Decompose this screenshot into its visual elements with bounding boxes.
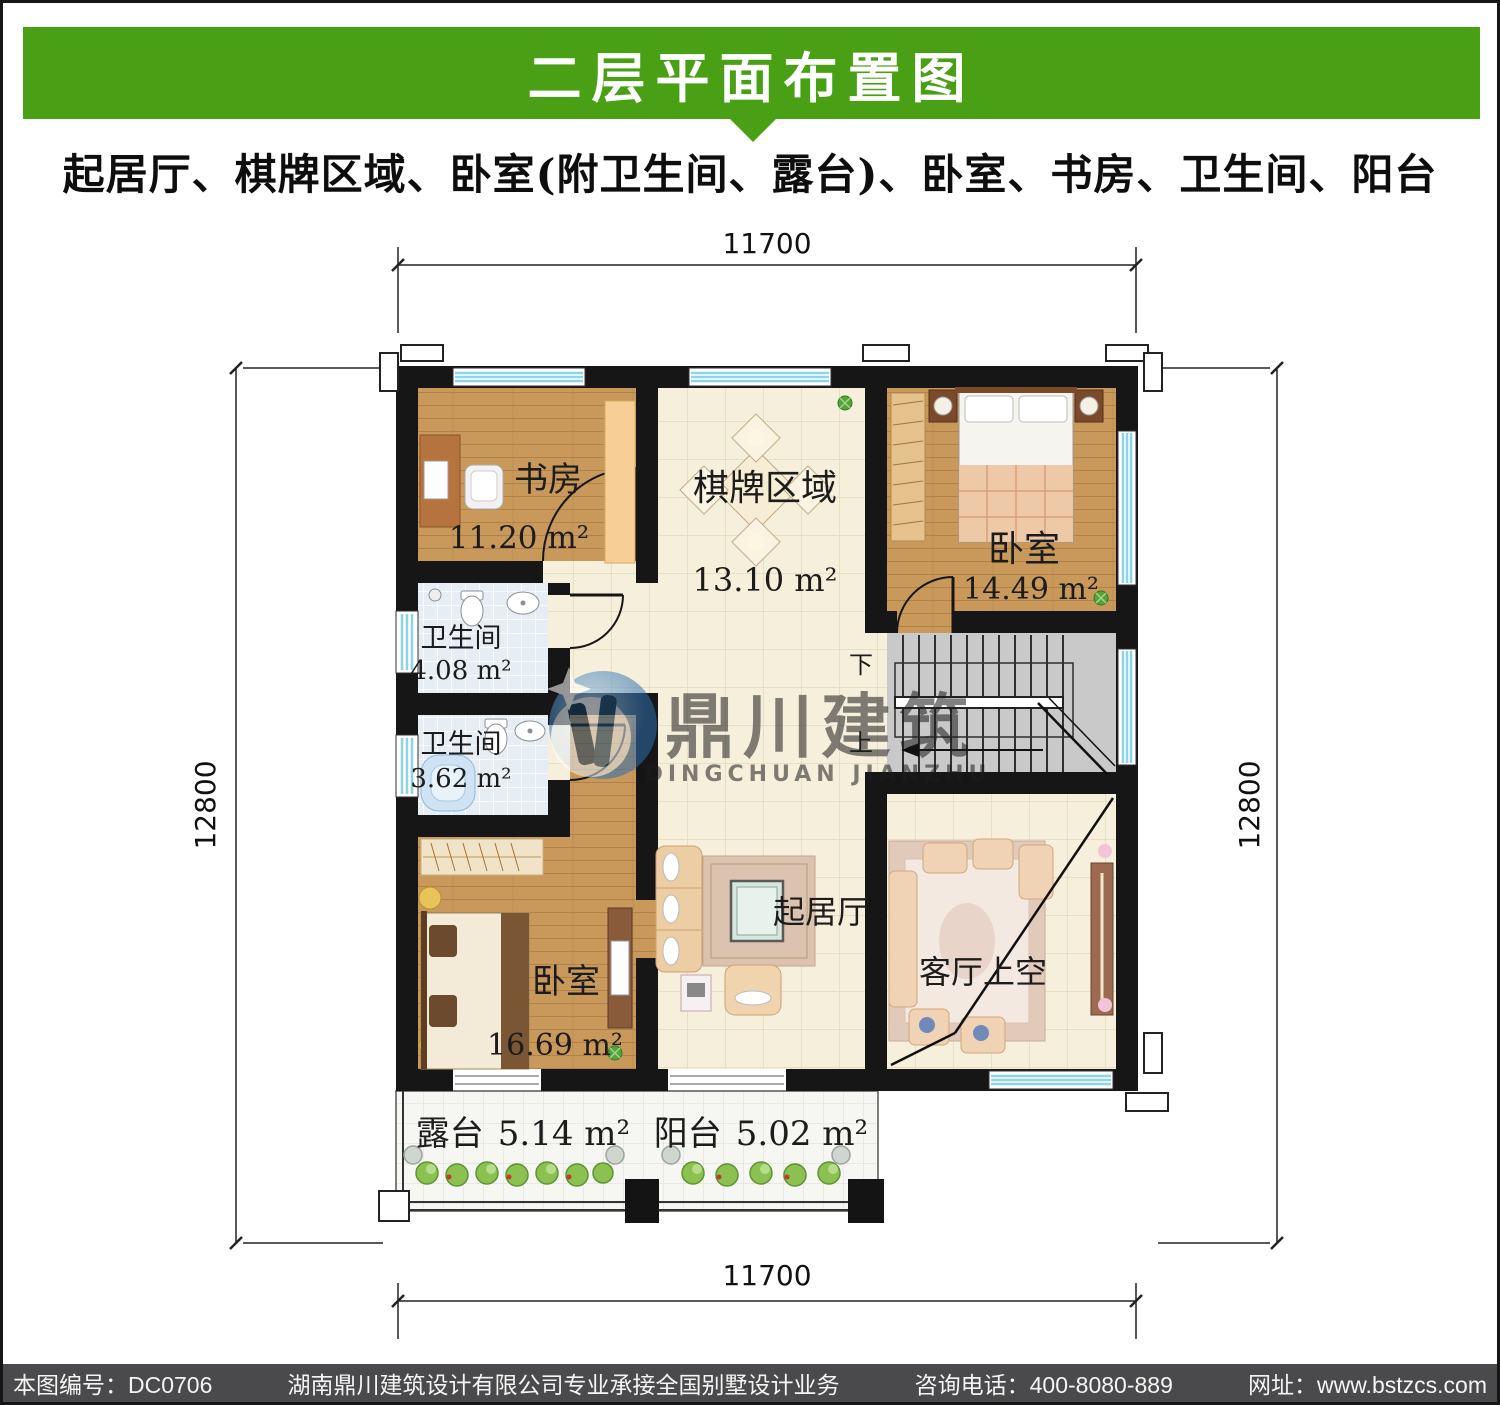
room-label-void: 客厅上空 — [919, 953, 1047, 991]
room-label-living: 起居厅 — [773, 893, 869, 931]
dimension-bottom: 11700 — [392, 1259, 1142, 1339]
armchair — [923, 843, 967, 873]
dimension-right: 12800 — [1158, 362, 1283, 1249]
window-icon — [989, 1071, 1113, 1089]
watermark-en: DINGCHUAN JIANZHU — [645, 762, 992, 787]
window-icon — [1118, 431, 1136, 585]
flower — [1098, 844, 1112, 858]
bedroom-ne-furniture — [891, 387, 1103, 542]
wardrobe — [891, 393, 925, 541]
footer-bar: 本图编号：DC0706 湖南鼎川建筑设计有限公司专业承接全国别墅设计业务 咨询电… — [3, 1364, 1497, 1402]
dimension-top: 11700 — [392, 227, 1142, 333]
lamp — [419, 887, 441, 909]
dimension-left: 12800 — [189, 362, 383, 1249]
monitor — [424, 461, 448, 499]
room-area-chess: 13.10 m² — [693, 561, 838, 599]
armchair — [725, 965, 781, 1015]
terrace-balcony — [379, 1091, 884, 1223]
column — [848, 1179, 884, 1223]
room-label-bath-b: 卫生间 — [421, 729, 502, 760]
flower — [1098, 998, 1112, 1012]
floor-plan: 11700 11700 12800 12800 — [3, 3, 1500, 1405]
room-label-bath-a: 卫生间 — [421, 623, 502, 654]
dim-top-label: 11700 — [722, 227, 811, 260]
footer-drawing-code: 本图编号：DC0706 — [13, 1366, 212, 1400]
figure — [973, 1025, 989, 1041]
armchair — [973, 839, 1013, 869]
tv — [611, 941, 629, 995]
room-label-chess: 棋牌区域 — [693, 468, 837, 509]
room-area-bath-a: 4.08 m² — [410, 656, 511, 686]
room-area-bedroom-sw: 16.69 m² — [487, 1028, 623, 1063]
dim-left-label: 12800 — [189, 760, 222, 849]
window-icon — [689, 368, 831, 386]
dim-bottom-label: 11700 — [722, 1259, 811, 1292]
sliding-door-icon — [453, 1071, 541, 1089]
footer-phone: 咨询电话：400-8080-889 — [915, 1366, 1173, 1400]
double-bed — [955, 387, 1077, 542]
footer-company: 湖南鼎川建筑设计有限公司专业承接全国别墅设计业务 — [288, 1366, 840, 1400]
room-area-bedroom-ne: 14.49 m² — [963, 572, 1099, 607]
page: 二层平面布置图 起居厅、棋牌区域、卧室(附卫生间、露台)、卧室、书房、卫生间、阳… — [0, 0, 1500, 1405]
column — [625, 1179, 659, 1223]
sofa — [889, 871, 917, 1007]
window-icon — [1118, 649, 1136, 765]
footer-website: 网址：www.bstzcs.com — [1248, 1366, 1487, 1400]
room-area-study: 11.20 m² — [449, 520, 589, 556]
room-label-terrace: 露台5.14 m² — [416, 1114, 630, 1154]
room-label-balcony: 阳台5.02 m² — [654, 1114, 868, 1154]
room-label-study: 书房 — [514, 460, 582, 500]
corner-post — [379, 1191, 409, 1221]
room-label-bedroom-sw: 卧室 — [532, 962, 600, 1002]
chaise — [1019, 845, 1053, 899]
window-icon — [453, 368, 585, 386]
bookcase — [605, 401, 635, 563]
dim-right-label: 12800 — [1233, 760, 1266, 849]
figure — [919, 1017, 935, 1033]
room-label-bedroom-ne: 卧室 — [988, 529, 1060, 570]
watermark-cn: 鼎川建筑 — [665, 685, 977, 768]
room-area-bath-b: 3.62 m² — [410, 764, 511, 794]
watermark: 鼎川建筑 DINGCHUAN JIANZHU — [547, 667, 991, 787]
stair-down-label: 下 — [849, 651, 873, 679]
sliding-door-icon — [668, 1071, 786, 1089]
